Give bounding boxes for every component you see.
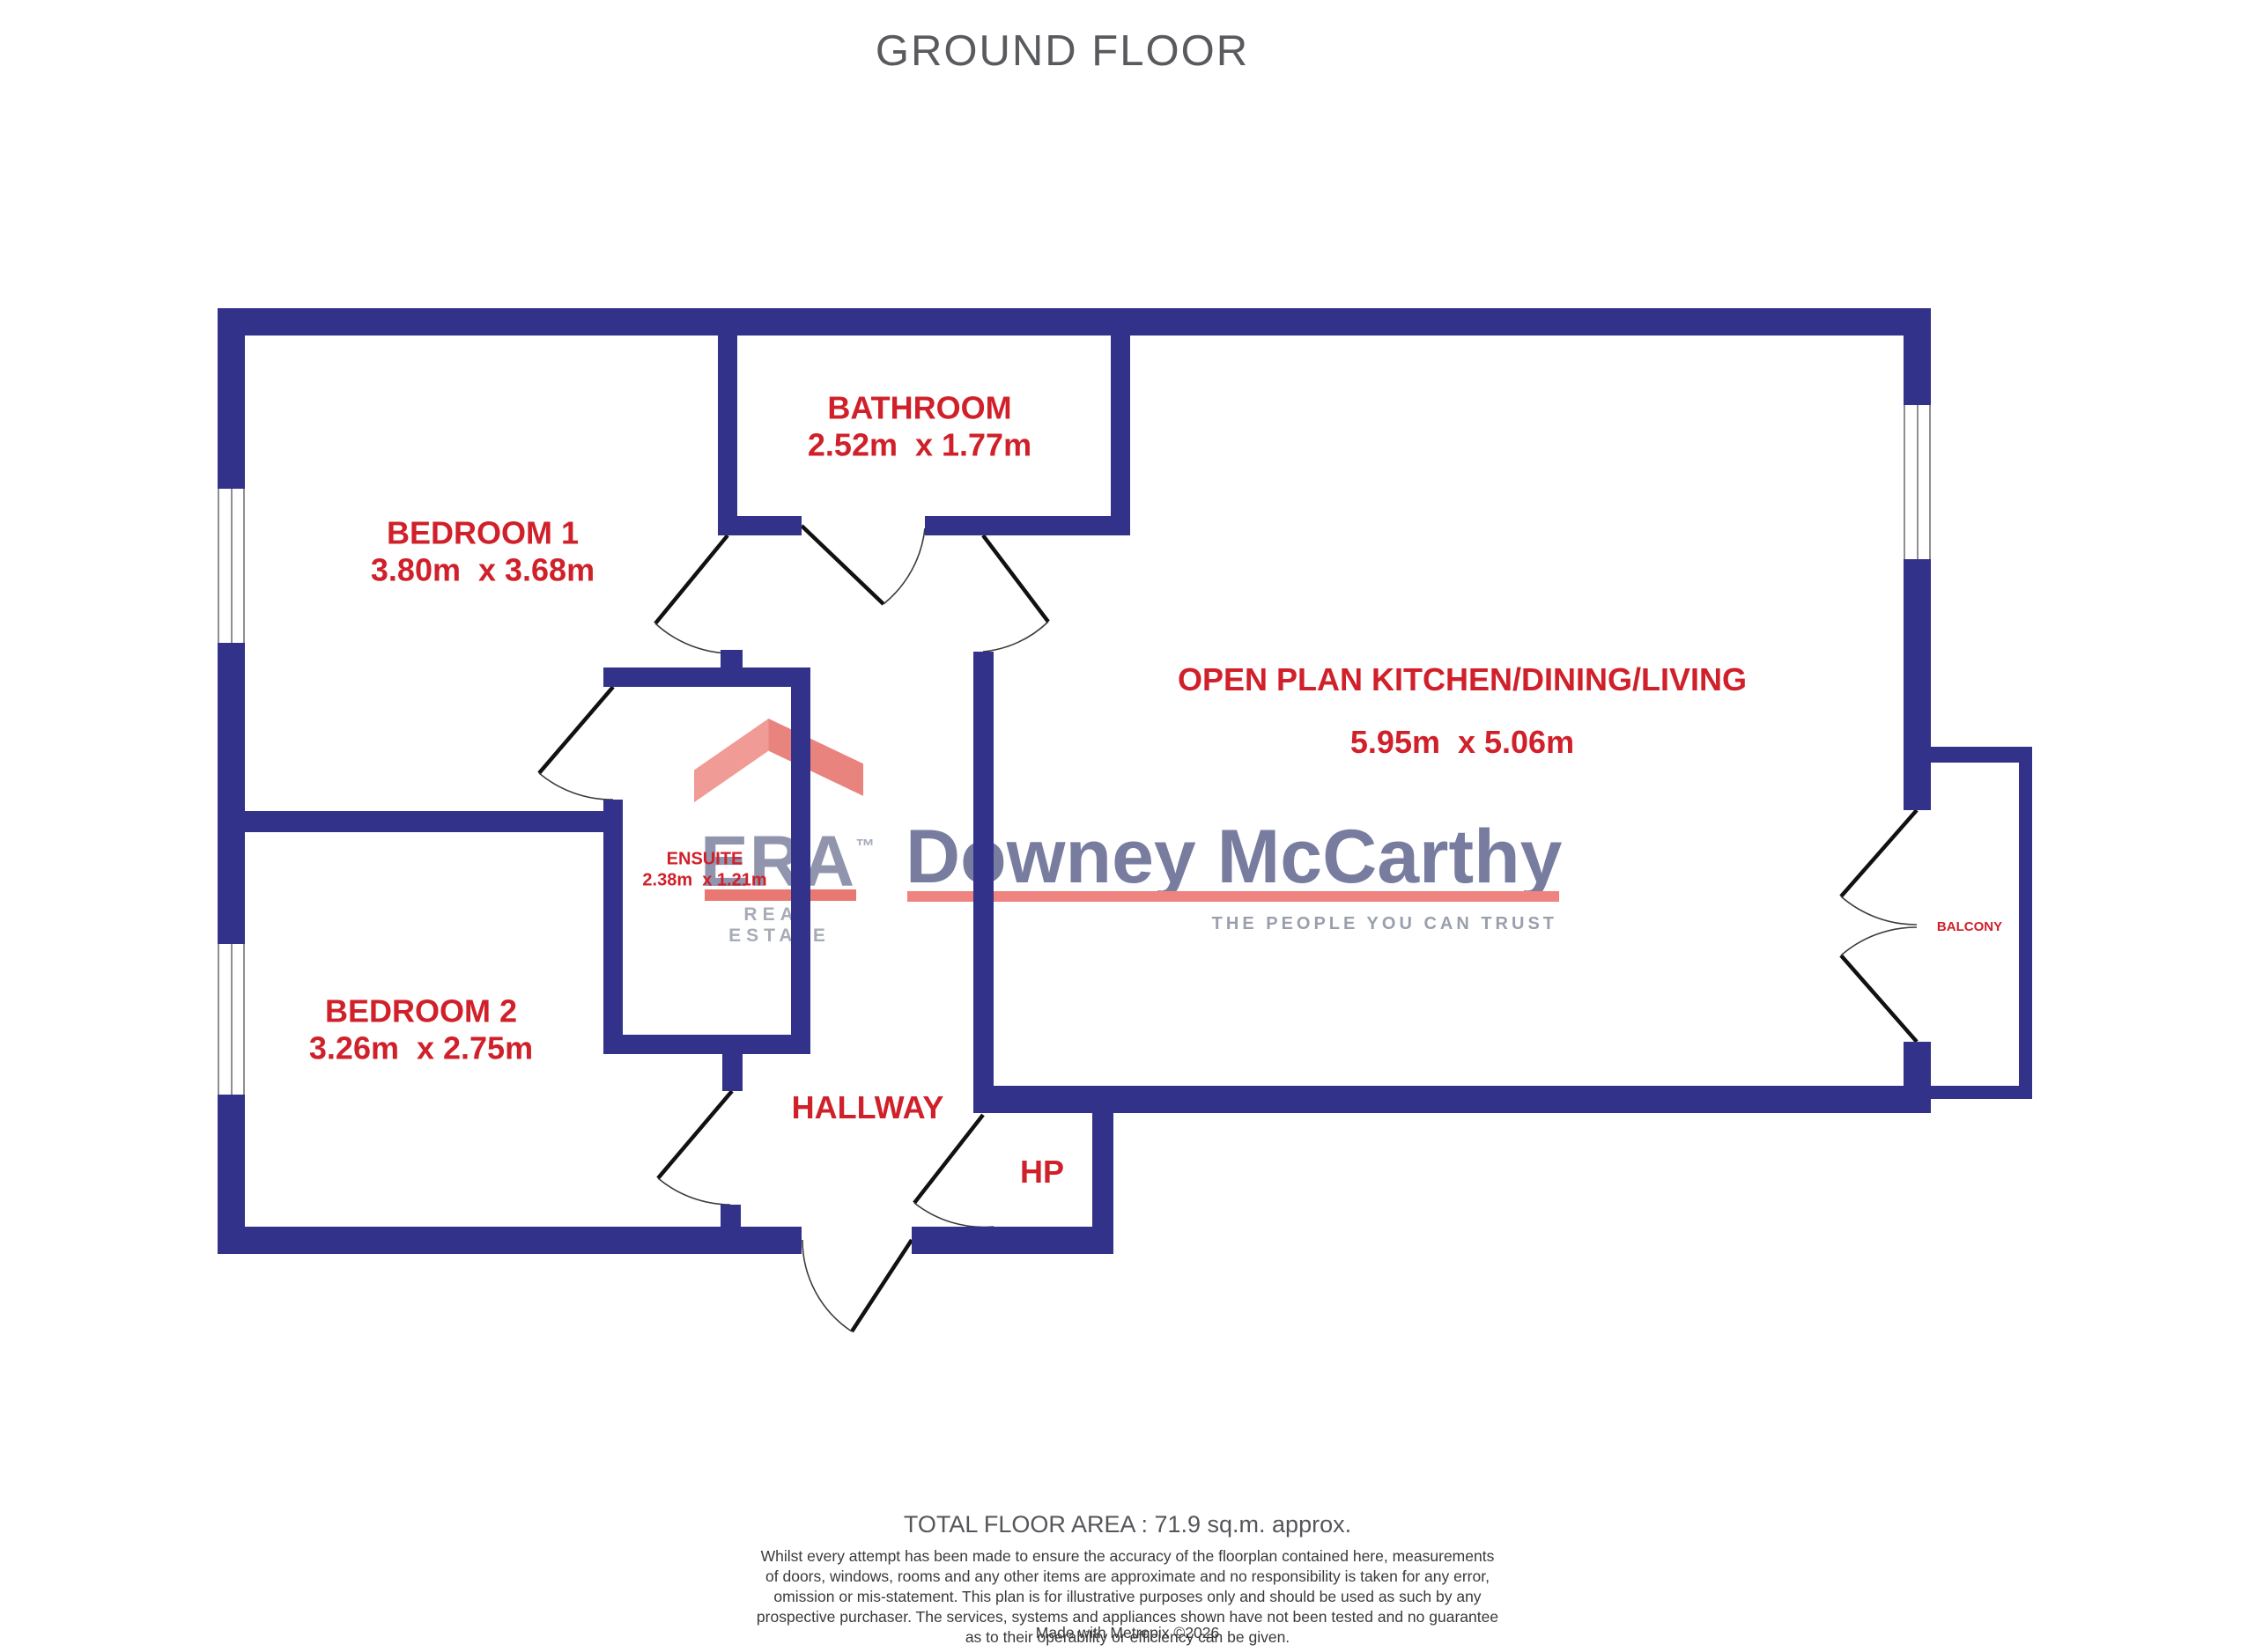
bed2-door-lower-stub <box>721 1205 741 1227</box>
bedroom1-label: BEDROOM 13.80m x 3.68m <box>371 515 595 590</box>
balcony-label: BALCONY <box>1937 919 2002 935</box>
ensuite-label-line-1: 2.38m x 1.21m <box>642 870 766 891</box>
bathroom-label-line-0: BATHROOM <box>808 390 1031 427</box>
openplan-dims-label-line-0: 5.95m x 5.06m <box>1350 724 1574 761</box>
balcony-door-lower-leaf <box>1841 955 1917 1042</box>
entrance-door-arc <box>802 1240 852 1331</box>
ensuite-label: ENSUITE2.38m x 1.21m <box>642 849 766 890</box>
balcony-top-wall <box>1931 747 2032 763</box>
ensuite-left-wall <box>603 800 623 1054</box>
bedroom1-label-line-1: 3.80m x 3.68m <box>371 552 595 589</box>
bottom-wall-right <box>912 1227 1113 1254</box>
hp-door-leaf <box>914 1115 983 1203</box>
left-wall-mid <box>218 643 245 944</box>
hallway-openplan-wall <box>973 652 994 1088</box>
bedroom1-door-leaf <box>655 535 728 623</box>
bedroom2-window-pane-0 <box>218 944 219 1095</box>
right-wall-upper <box>1904 330 1931 405</box>
bedroom1-label-line-0: BEDROOM 1 <box>371 515 595 552</box>
floorplan: BATHROOM2.52m x 1.77mBEDROOM 13.80m x 3.… <box>0 0 2255 1652</box>
entrance-door-leaf <box>852 1240 912 1331</box>
bed1-door-stub <box>721 650 743 669</box>
bedroom2-window-pane-2 <box>243 944 245 1095</box>
bedroom2-window <box>218 944 245 1095</box>
hp-right-wall <box>1092 1113 1113 1229</box>
openplan-door-arc <box>983 622 1048 652</box>
page: GROUND FLOOR ERA™ REAL ESTATE Downey McC… <box>0 0 2255 1652</box>
bedroom1-window-pane-2 <box>243 489 245 643</box>
balcony-label-line-0: BALCONY <box>1937 919 2002 935</box>
bed2-door-upper-stub <box>722 1054 743 1091</box>
ensuite-label-line-0: ENSUITE <box>642 849 766 870</box>
bathroom-door-arc <box>884 528 925 604</box>
ensuite-right-wall <box>791 667 810 1054</box>
hp-label-line-0: HP <box>1020 1154 1064 1191</box>
openplan-window-pane-0 <box>1904 405 1905 559</box>
top-wall <box>218 308 1931 336</box>
ensuite-door-arc <box>539 773 613 800</box>
floorplan-page: { "title": "GROUND FLOOR", "colors": { "… <box>0 0 2255 1652</box>
bedroom2-label: BEDROOM 23.26m x 2.75m <box>309 993 533 1068</box>
bedroom1-window <box>218 489 245 643</box>
bedroom1-window-pane-0 <box>218 489 219 643</box>
bedroom-divider-wall <box>245 811 603 832</box>
openplan-label-line-0: OPEN PLAN KITCHEN/DINING/LIVING <box>1178 661 1747 698</box>
bottom-wall-left <box>218 1227 802 1254</box>
bathroom-right-wall <box>1111 336 1130 518</box>
openplan-window <box>1904 405 1931 559</box>
left-wall-upper <box>218 330 245 489</box>
hallway-label-line-0: HALLWAY <box>792 1089 944 1126</box>
balcony-bottom-wall <box>1931 1086 2032 1099</box>
ensuite-top-wall <box>603 667 810 687</box>
bathroom-left-wall <box>718 336 737 535</box>
bedroom2-label-line-1: 3.26m x 2.75m <box>309 1030 533 1067</box>
bathroom-bottom-wall-right <box>925 516 1130 535</box>
right-wall-mid <box>1904 559 1931 810</box>
hp-door-arc <box>914 1203 994 1227</box>
openplan-door-leaf <box>983 535 1048 622</box>
bathroom-door-leaf <box>802 526 884 604</box>
bedroom2-door-arc <box>658 1178 730 1205</box>
bedroom2-window-pane-1 <box>231 944 233 1095</box>
bedroom2-door-leaf <box>658 1091 732 1178</box>
balcony-door-upper-leaf <box>1841 810 1917 896</box>
ensuite-bottom-wall <box>603 1035 810 1054</box>
ensuite-door-leaf <box>539 687 613 773</box>
openplan-label: OPEN PLAN KITCHEN/DINING/LIVING <box>1178 661 1747 698</box>
openplan-window-pane-2 <box>1929 405 1931 559</box>
bathroom-label-line-1: 2.52m x 1.77m <box>808 427 1031 464</box>
openplan-window-pane-1 <box>1917 405 1919 559</box>
bedroom2-label-line-0: BEDROOM 2 <box>309 993 533 1030</box>
openplan-dims-label: 5.95m x 5.06m <box>1350 724 1574 761</box>
balcony-door-upper-arc <box>1841 896 1917 925</box>
bedroom1-window-pane-1 <box>231 489 233 643</box>
bathroom-bottom-wall-left <box>718 516 802 535</box>
balcony-door-lower-arc <box>1841 927 1917 955</box>
openplan-bottom-wall <box>973 1086 1931 1113</box>
hallway-label: HALLWAY <box>792 1089 944 1126</box>
balcony-right-wall <box>2019 747 2032 1099</box>
bedroom1-door-arc <box>655 623 728 653</box>
hp-label: HP <box>1020 1154 1064 1191</box>
bathroom-label: BATHROOM2.52m x 1.77m <box>808 390 1031 465</box>
